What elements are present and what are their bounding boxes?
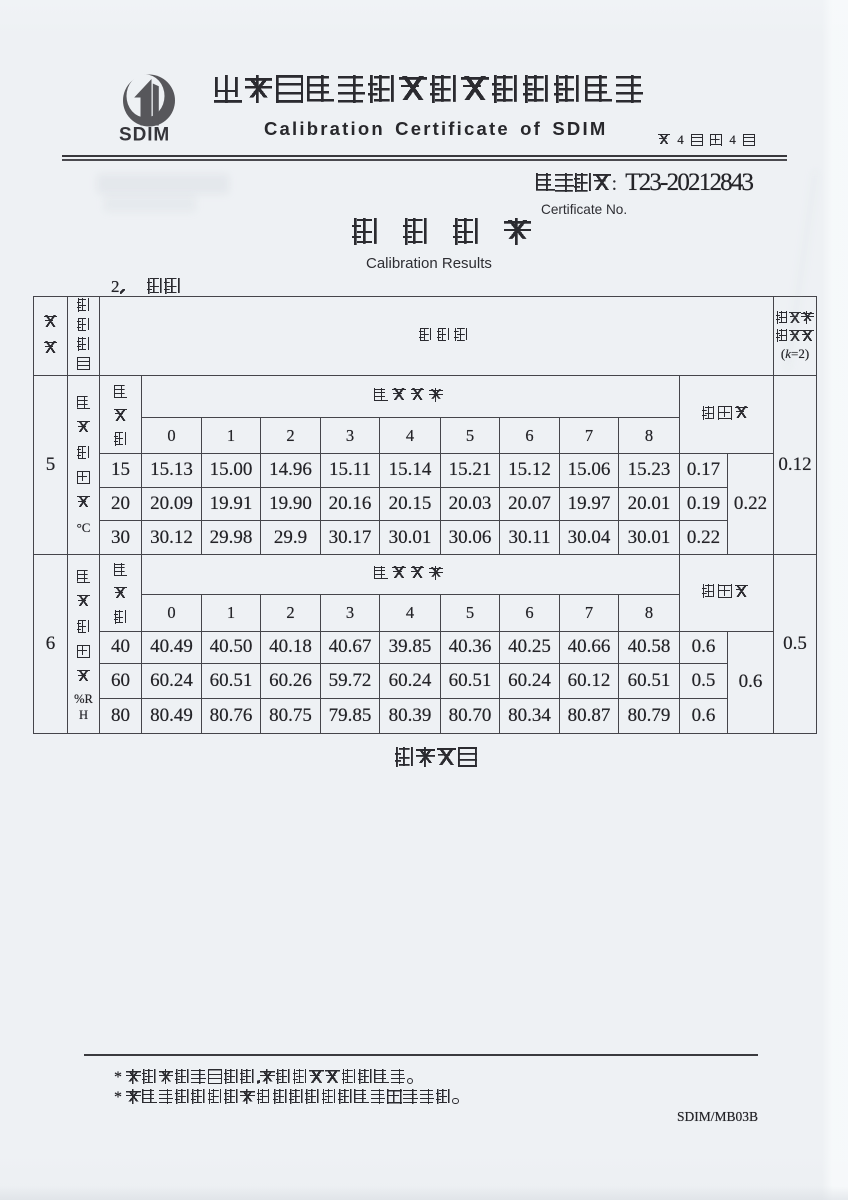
svg-text:SDIM: SDIM [119,125,170,145]
